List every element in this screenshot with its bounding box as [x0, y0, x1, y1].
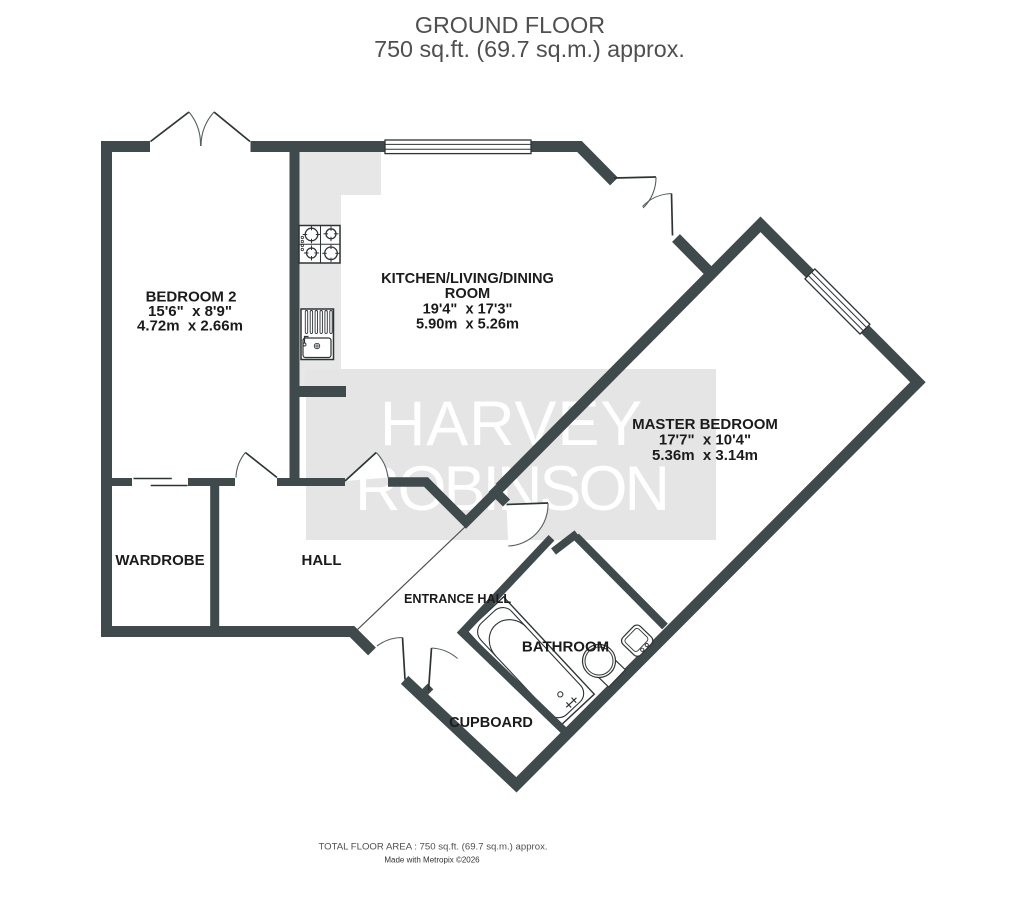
svg-text:4.72m x 2.66m: 4.72m x 2.66m [137, 318, 243, 335]
svg-text:WARDROBE: WARDROBE [115, 552, 204, 569]
svg-text:17'7" x 10'4": 17'7" x 10'4" [659, 432, 751, 449]
svg-text:ENTRANCE HALL: ENTRANCE HALL [404, 592, 511, 606]
svg-text:GROUND FLOOR: GROUND FLOOR [415, 12, 605, 38]
svg-text:TOTAL FLOOR AREA : 750 sq.ft.: TOTAL FLOOR AREA : 750 sq.ft. (69.7 sq.m… [318, 842, 547, 853]
svg-text:5.90m x 5.26m: 5.90m x 5.26m [416, 317, 519, 333]
svg-text:BATHROOM: BATHROOM [522, 639, 609, 656]
svg-text:750 sq.ft. (69.7 sq.m.) approx: 750 sq.ft. (69.7 sq.m.) approx. [374, 36, 685, 62]
svg-text:MASTER BEDROOM: MASTER BEDROOM [632, 416, 778, 433]
svg-text:Made with Metropix ©2026: Made with Metropix ©2026 [384, 856, 480, 865]
svg-text:HALL: HALL [302, 552, 342, 569]
svg-text:ROOM: ROOM [445, 286, 490, 302]
svg-text:5.36m x 3.14m: 5.36m x 3.14m [652, 447, 758, 464]
svg-text:19'4" x 17'3": 19'4" x 17'3" [423, 301, 513, 317]
svg-text:CUPBOARD: CUPBOARD [449, 715, 533, 731]
svg-text:KITCHEN/LIVING/DINING: KITCHEN/LIVING/DINING [381, 271, 554, 287]
svg-text:HARVEY: HARVEY [380, 389, 643, 459]
